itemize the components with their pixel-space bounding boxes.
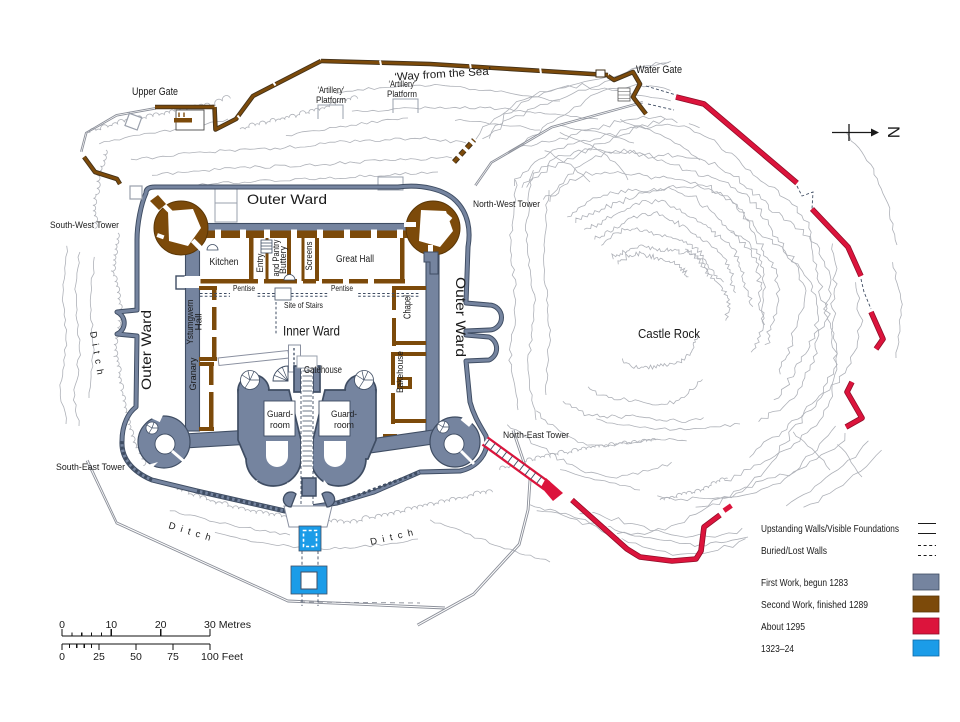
svg-text:About 1295: About 1295 (761, 621, 805, 633)
svg-text:Platform: Platform (387, 89, 417, 99)
svg-text:Screens: Screens (304, 241, 314, 270)
svg-text:Water Gate: Water Gate (636, 64, 682, 76)
svg-text:20: 20 (155, 619, 167, 631)
svg-text:Platform: Platform (316, 95, 346, 105)
svg-text:Pentise: Pentise (331, 284, 353, 293)
svg-text:N: N (884, 126, 903, 138)
svg-text:0: 0 (59, 619, 65, 631)
svg-text:Gatehouse: Gatehouse (304, 365, 342, 376)
svg-text:Outer Ward: Outer Ward (247, 191, 327, 207)
svg-text:‘Artillery’: ‘Artillery’ (389, 79, 416, 89)
svg-text:Upstanding Walls/Visible Found: Upstanding Walls/Visible Foundations (761, 523, 899, 535)
svg-text:‘Artillery’: ‘Artillery’ (318, 85, 345, 95)
svg-text:Hall: Hall (194, 314, 204, 331)
svg-text:First Work, begun 1283: First Work, begun 1283 (761, 577, 848, 589)
svg-text:Bakehouse: Bakehouse (395, 351, 405, 393)
svg-text:Kitchen: Kitchen (210, 257, 239, 268)
svg-text:100 Feet: 100 Feet (201, 651, 243, 663)
svg-text:Chapel: Chapel (403, 295, 414, 319)
svg-text:Granary: Granary (188, 357, 198, 391)
svg-text:South-East Tower: South-East Tower (56, 462, 125, 473)
svg-text:1323–24: 1323–24 (761, 643, 794, 655)
svg-text:Upper Gate: Upper Gate (132, 86, 178, 98)
svg-text:Outer Ward: Outer Ward (138, 310, 154, 390)
svg-text:room: room (270, 420, 290, 430)
svg-text:North-West Tower: North-West Tower (473, 199, 540, 210)
svg-text:Second Work, finished 1289: Second Work, finished 1289 (761, 599, 868, 611)
svg-text:10: 10 (105, 619, 117, 631)
svg-text:Outer Ward: Outer Ward (453, 277, 469, 357)
svg-text:0: 0 (59, 651, 65, 663)
svg-text:and Pantry: and Pantry (271, 239, 281, 276)
svg-text:Guard-: Guard- (267, 409, 293, 419)
svg-text:75: 75 (167, 651, 179, 663)
svg-text:Entry: Entry (255, 253, 265, 272)
svg-text:Pentise: Pentise (233, 284, 255, 293)
svg-text:Castle Rock: Castle Rock (638, 327, 701, 341)
svg-text:Buried/Lost Walls: Buried/Lost Walls (761, 545, 827, 557)
svg-text:25: 25 (93, 651, 105, 663)
svg-text:Site of Stairs: Site of Stairs (284, 300, 323, 310)
svg-text:room: room (334, 420, 354, 430)
svg-text:Inner Ward: Inner Ward (283, 323, 340, 339)
svg-text:50: 50 (130, 651, 142, 663)
svg-text:North-East Tower: North-East Tower (503, 430, 569, 441)
svg-text:Guard-: Guard- (331, 409, 357, 419)
svg-text:South-West Tower: South-West Tower (50, 220, 119, 231)
svg-text:30 Metres: 30 Metres (204, 619, 251, 631)
svg-text:Great Hall: Great Hall (336, 253, 374, 265)
